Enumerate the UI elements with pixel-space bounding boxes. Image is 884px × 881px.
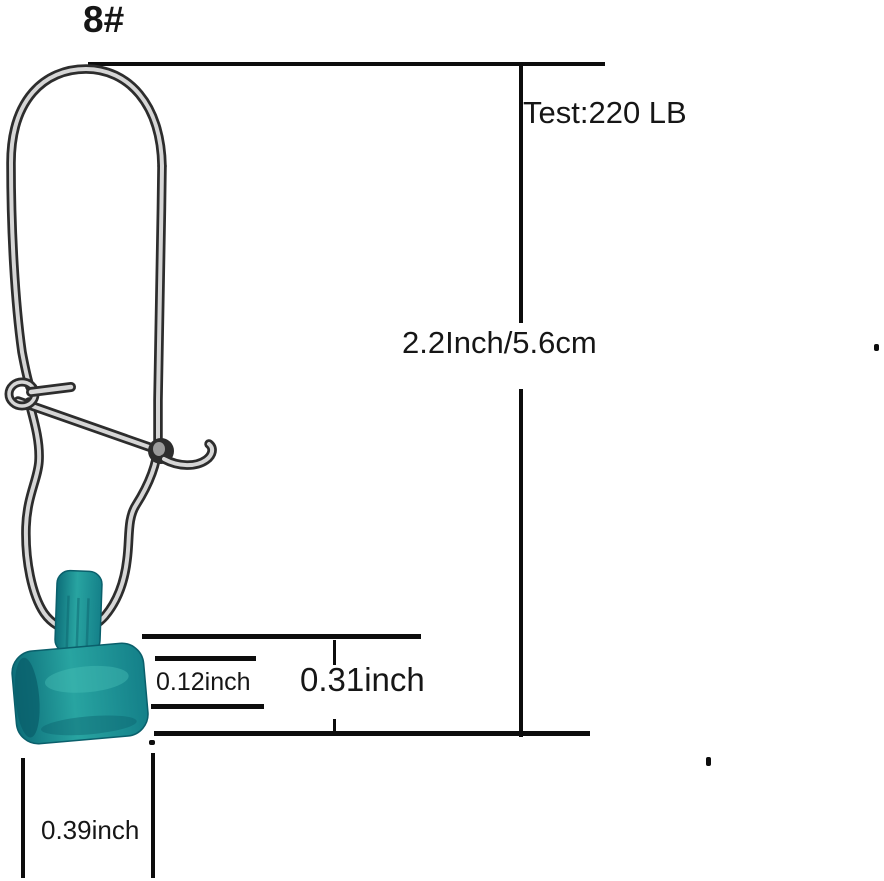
snap-wire <box>9 69 212 631</box>
snap-latch-bar <box>31 387 71 392</box>
length-dimension-line-upper <box>519 64 523 323</box>
speck <box>706 757 711 766</box>
slide-width-extension-line-right <box>151 753 155 878</box>
product-dimension-diagram: 8# Test:220 LB 2.2Inch/5.6cm 0.12inch 0.… <box>0 0 884 881</box>
snap-width-tick-top <box>333 640 336 665</box>
slide-width-extension-line-left <box>21 758 25 878</box>
slide-width-dimension-label: 0.39inch <box>41 817 139 844</box>
snap-clip-illustration <box>0 58 240 760</box>
sinker-slide-body <box>10 641 150 745</box>
length-dimension-line-lower <box>519 389 523 737</box>
test-strength-label: Test:220 LB <box>523 97 687 130</box>
snap-width-dimension-label: 0.31inch <box>300 663 425 698</box>
size-rating-label: 8# <box>83 1 124 40</box>
speck <box>874 344 879 351</box>
sinker-slide-strap <box>55 570 103 654</box>
length-dimension-label: 2.2Inch/5.6cm <box>402 327 597 360</box>
